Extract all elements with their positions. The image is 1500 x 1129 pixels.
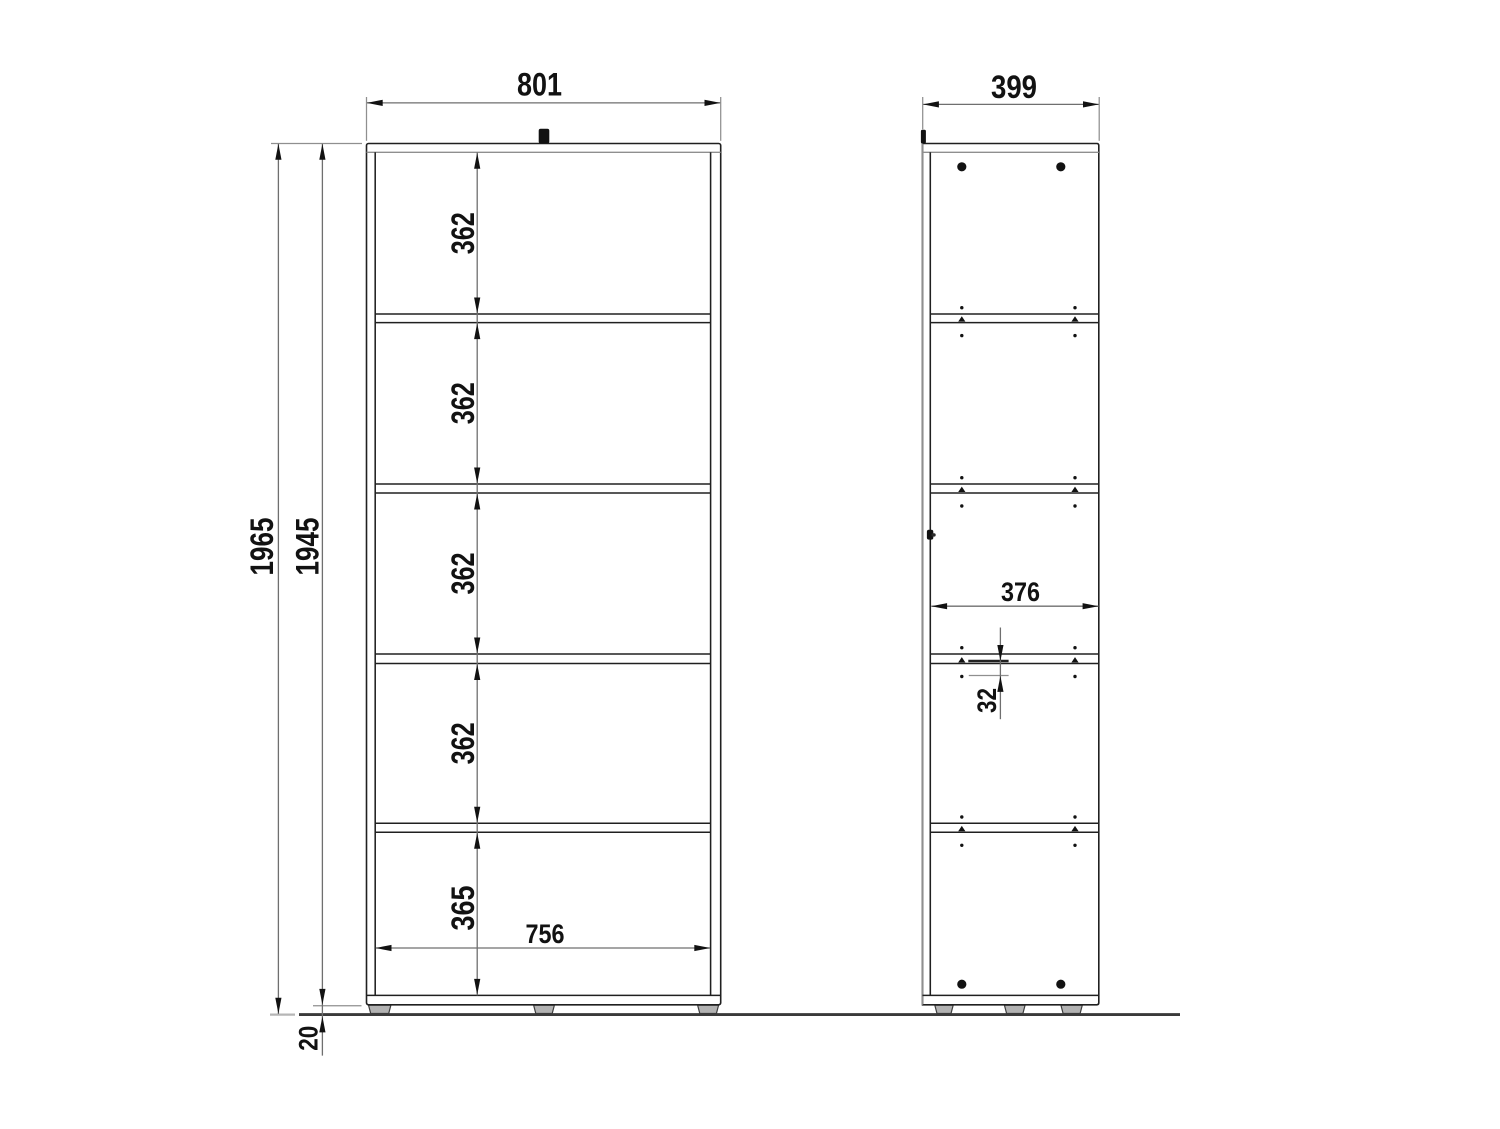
svg-text:365: 365 [446, 886, 482, 931]
svg-text:756: 756 [526, 920, 565, 950]
svg-text:801: 801 [517, 67, 562, 103]
svg-text:399: 399 [991, 70, 1037, 105]
svg-text:20: 20 [295, 1026, 324, 1051]
svg-text:362: 362 [446, 553, 482, 595]
svg-text:362: 362 [446, 212, 482, 254]
svg-text:362: 362 [446, 722, 482, 764]
svg-text:1945: 1945 [291, 518, 326, 576]
svg-text:362: 362 [446, 382, 482, 424]
svg-text:376: 376 [1001, 577, 1040, 607]
svg-text:1965: 1965 [246, 518, 281, 576]
svg-text:32: 32 [973, 688, 1002, 713]
